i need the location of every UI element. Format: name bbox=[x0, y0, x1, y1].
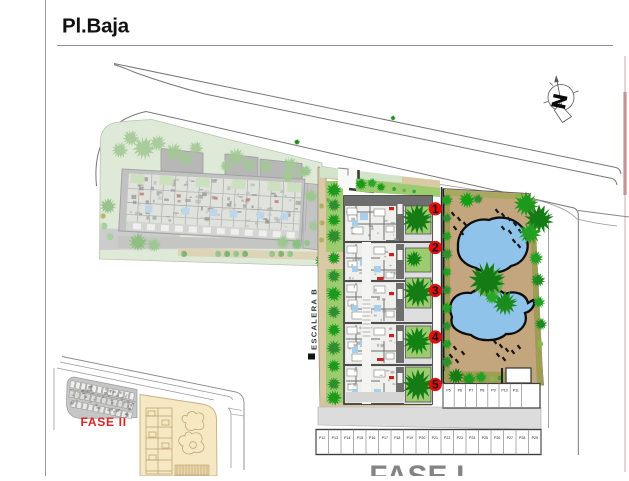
svg-text:P22: P22 bbox=[444, 436, 450, 440]
svg-text:5: 5 bbox=[432, 378, 439, 392]
svg-text:Pl.Baja: Pl.Baja bbox=[62, 15, 130, 38]
svg-text:P26: P26 bbox=[494, 436, 500, 440]
svg-text:P15: P15 bbox=[357, 436, 363, 440]
svg-text:P17: P17 bbox=[382, 436, 388, 440]
svg-text:P5: P5 bbox=[446, 389, 450, 393]
svg-text:P6: P6 bbox=[458, 389, 462, 393]
svg-text:P20: P20 bbox=[419, 436, 425, 440]
svg-text:P8: P8 bbox=[480, 389, 484, 393]
svg-text:2: 2 bbox=[432, 241, 439, 255]
svg-text:P10: P10 bbox=[501, 389, 507, 393]
svg-text:P25: P25 bbox=[482, 436, 488, 440]
svg-text:P7: P7 bbox=[469, 389, 473, 393]
svg-text:FASE I: FASE I bbox=[369, 460, 464, 476]
svg-text:P21: P21 bbox=[432, 436, 438, 440]
svg-text:P11: P11 bbox=[513, 389, 519, 393]
svg-text:P24: P24 bbox=[469, 436, 475, 440]
svg-text:P14: P14 bbox=[344, 436, 350, 440]
svg-text:P9: P9 bbox=[491, 389, 495, 393]
svg-text:P13: P13 bbox=[332, 436, 338, 440]
svg-text:P27: P27 bbox=[507, 436, 513, 440]
svg-text:1: 1 bbox=[432, 202, 439, 216]
svg-text:ESCALERA B: ESCALERA B bbox=[310, 288, 319, 350]
svg-text:P18: P18 bbox=[394, 436, 400, 440]
svg-text:P12: P12 bbox=[319, 436, 325, 440]
svg-text:4: 4 bbox=[432, 330, 439, 344]
svg-text:3: 3 bbox=[432, 284, 439, 298]
svg-text:P19: P19 bbox=[407, 436, 413, 440]
svg-text:FASE II: FASE II bbox=[81, 415, 127, 429]
svg-text:P23: P23 bbox=[457, 436, 463, 440]
svg-text:P28: P28 bbox=[519, 436, 525, 440]
svg-text:P29: P29 bbox=[532, 436, 538, 440]
svg-text:P16: P16 bbox=[369, 436, 375, 440]
